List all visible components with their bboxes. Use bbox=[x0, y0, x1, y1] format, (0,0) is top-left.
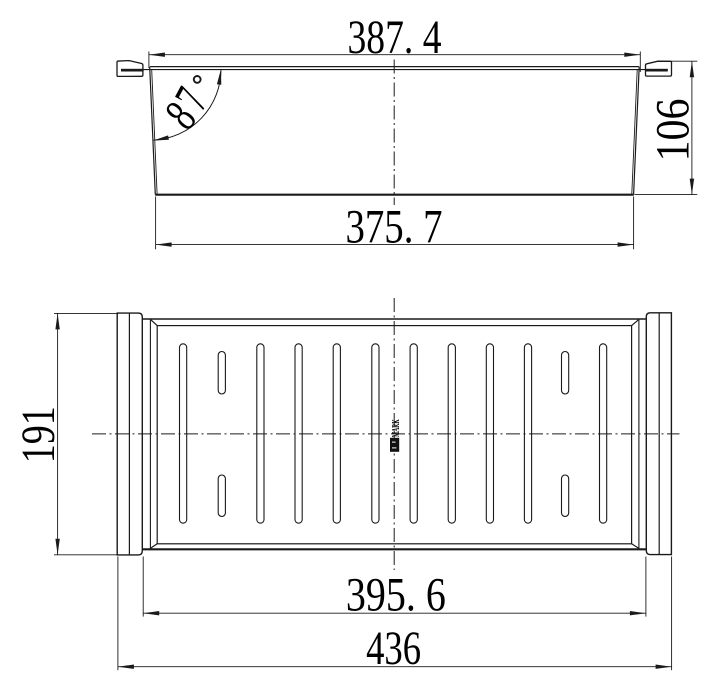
svg-text:191: 191 bbox=[13, 406, 65, 463]
svg-text:436: 436 bbox=[366, 623, 421, 675]
svg-text:375. 7: 375. 7 bbox=[346, 202, 443, 254]
svg-text:395. 6: 395. 6 bbox=[346, 569, 446, 621]
svg-text:106: 106 bbox=[647, 99, 699, 162]
svg-text:MARK: MARK bbox=[390, 419, 402, 437]
svg-text:387. 4: 387. 4 bbox=[348, 12, 442, 64]
